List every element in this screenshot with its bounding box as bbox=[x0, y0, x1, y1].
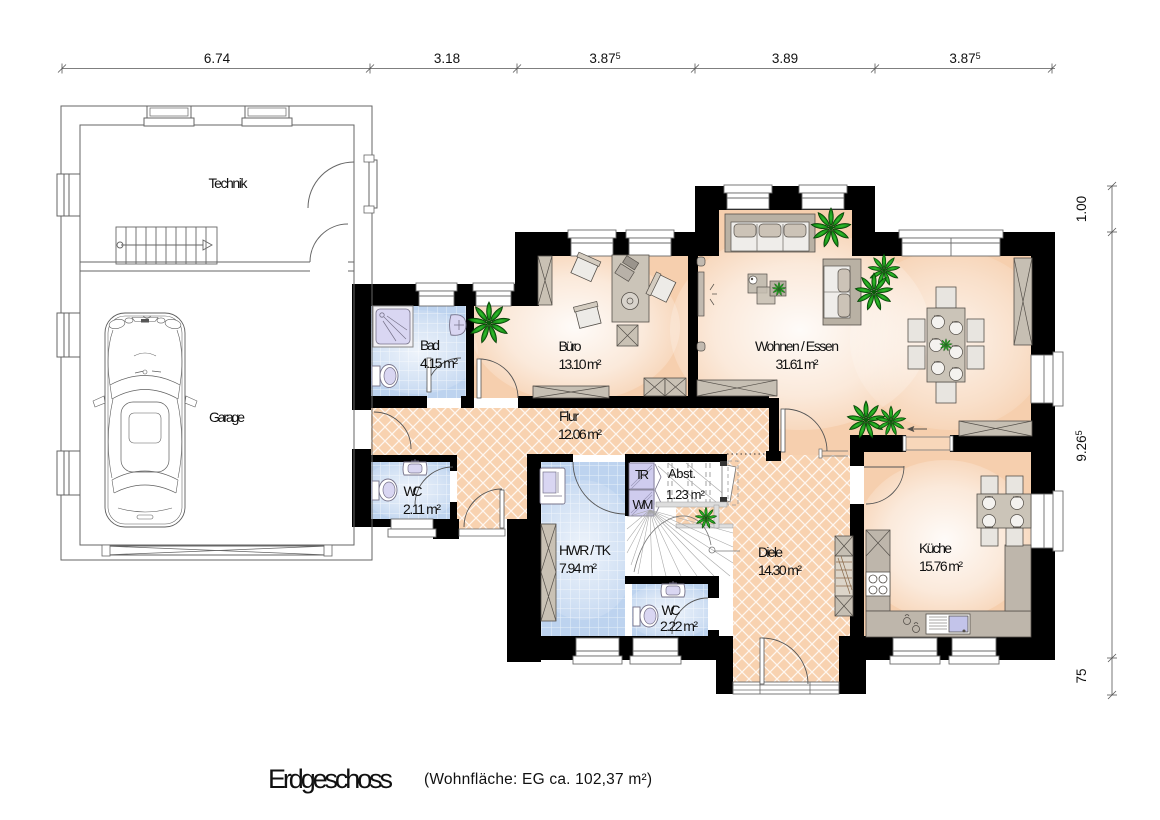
svg-text:Küche: Küche bbox=[919, 540, 952, 556]
svg-text:4.15 m²: 4.15 m² bbox=[420, 355, 458, 371]
svg-text:2.11 m²: 2.11 m² bbox=[403, 501, 441, 517]
svg-text:75: 75 bbox=[1074, 668, 1089, 683]
svg-text:Wohnen / Essen: Wohnen / Essen bbox=[755, 338, 839, 354]
svg-text:7.94 m²: 7.94 m² bbox=[559, 560, 597, 576]
svg-text:WM: WM bbox=[633, 497, 654, 512]
svg-text:Technik: Technik bbox=[209, 175, 249, 191]
svg-text:Bad: Bad bbox=[420, 337, 440, 353]
svg-text:Garage: Garage bbox=[209, 409, 245, 425]
svg-text:(Wohnfläche: EG ca. 102,37 m²: (Wohnfläche: EG ca. 102,37 m²) bbox=[424, 771, 652, 788]
svg-text:Büro: Büro bbox=[559, 338, 582, 354]
svg-text:Diele: Diele bbox=[758, 544, 783, 560]
svg-text:13.10 m²: 13.10 m² bbox=[559, 356, 602, 372]
svg-text:Flur: Flur bbox=[559, 408, 579, 424]
svg-text:2.22 m²: 2.22 m² bbox=[660, 618, 698, 634]
svg-text:12.06 m²: 12.06 m² bbox=[558, 426, 602, 442]
svg-text:14.30 m²: 14.30 m² bbox=[758, 562, 802, 578]
svg-text:WC: WC bbox=[662, 602, 681, 618]
svg-text:31.61 m²: 31.61 m² bbox=[776, 356, 819, 372]
svg-text:Abst.: Abst. bbox=[668, 466, 696, 481]
svg-text:6.74: 6.74 bbox=[204, 51, 231, 66]
svg-text:15.76 m²: 15.76 m² bbox=[919, 558, 963, 574]
svg-text:3.89: 3.89 bbox=[772, 51, 798, 66]
svg-text:3.18: 3.18 bbox=[434, 51, 460, 66]
svg-text:1.23 m²: 1.23 m² bbox=[666, 487, 706, 502]
svg-text:Erdgeschoss: Erdgeschoss bbox=[268, 764, 393, 794]
svg-text:WC: WC bbox=[404, 483, 423, 499]
svg-text:HWR / TK: HWR / TK bbox=[559, 542, 612, 558]
svg-text:1.00: 1.00 bbox=[1074, 196, 1089, 222]
svg-text:TR: TR bbox=[635, 467, 649, 482]
